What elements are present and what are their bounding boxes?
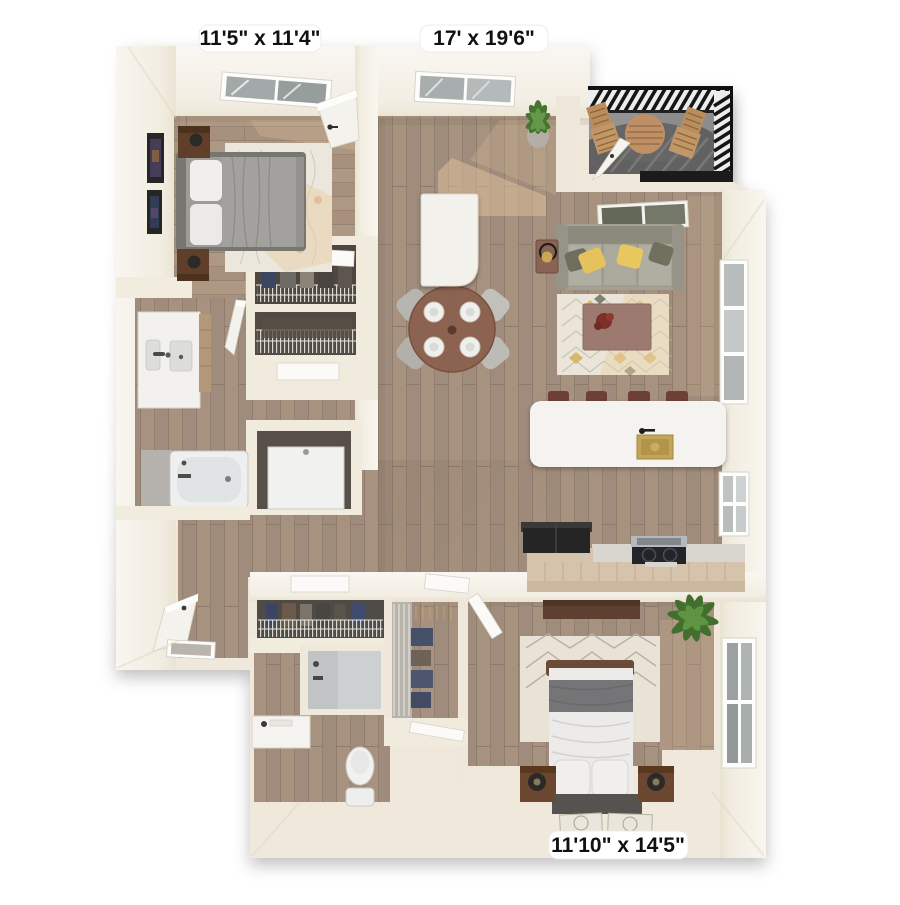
svg-text:11'10" x 14'5": 11'10" x 14'5" [551, 834, 685, 857]
svg-text:17' x 19'6": 17' x 19'6" [433, 27, 535, 50]
svg-text:11'5" x 11'4": 11'5" x 11'4" [199, 27, 320, 50]
